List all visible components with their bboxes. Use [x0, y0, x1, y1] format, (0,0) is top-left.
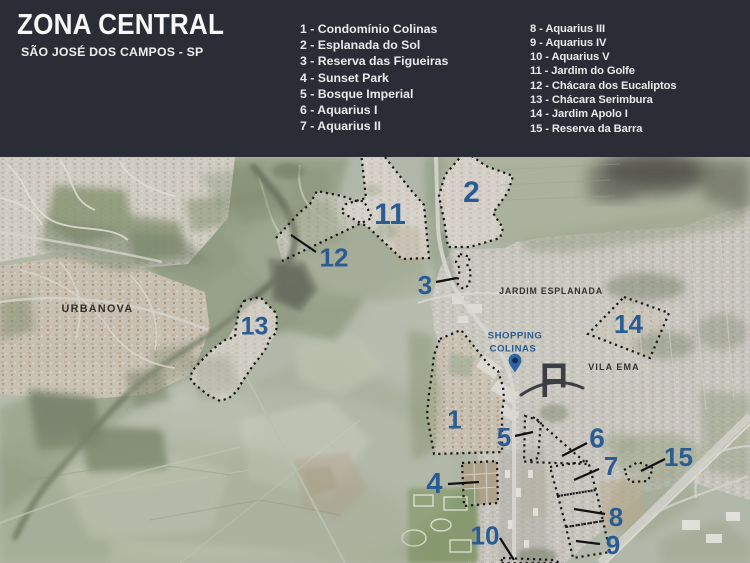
svg-text:6: 6 — [589, 423, 605, 454]
svg-text:JARDIM ESPLANADA: JARDIM ESPLANADA — [499, 286, 603, 296]
svg-text:14: 14 — [614, 309, 643, 339]
svg-text:10: 10 — [471, 521, 500, 551]
svg-text:13: 13 — [241, 313, 269, 341]
svg-text:VILA EMA: VILA EMA — [588, 362, 639, 372]
svg-text:8: 8 — [609, 502, 623, 532]
svg-text:2: 2 — [463, 176, 480, 209]
svg-text:15: 15 — [664, 442, 693, 472]
svg-text:URBANOVA: URBANOVA — [62, 303, 134, 315]
svg-text:SHOPPING: SHOPPING — [488, 331, 543, 342]
svg-text:11: 11 — [374, 198, 406, 231]
svg-text:COLINAS: COLINAS — [490, 344, 537, 355]
svg-text:4: 4 — [426, 468, 442, 500]
svg-text:12: 12 — [320, 243, 349, 273]
svg-text:3: 3 — [418, 270, 432, 300]
svg-text:9: 9 — [606, 530, 620, 560]
svg-text:5: 5 — [497, 422, 511, 452]
svg-text:1: 1 — [447, 405, 461, 435]
svg-text:7: 7 — [604, 451, 618, 481]
